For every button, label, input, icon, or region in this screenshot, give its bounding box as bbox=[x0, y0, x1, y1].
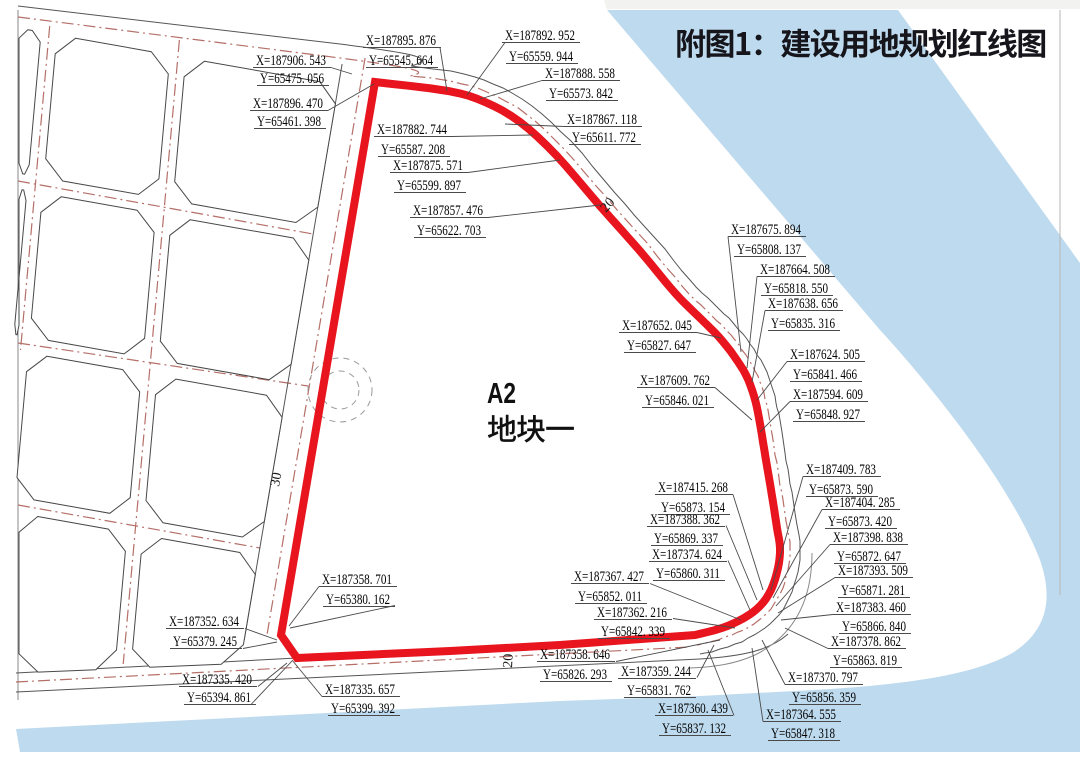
svg-text:Y=65808. 137: Y=65808. 137 bbox=[737, 242, 801, 258]
svg-text:X=187675. 894: X=187675. 894 bbox=[731, 222, 801, 238]
svg-text:Y=65461. 398: Y=65461. 398 bbox=[257, 114, 321, 130]
svg-text:Y=65842. 339: Y=65842. 339 bbox=[601, 624, 665, 640]
svg-text:Y=65475. 056: Y=65475. 056 bbox=[260, 71, 324, 87]
svg-text:Y=65866. 840: Y=65866. 840 bbox=[842, 619, 906, 635]
svg-text:X=187624. 505: X=187624. 505 bbox=[790, 347, 860, 363]
svg-text:X=187867. 118: X=187867. 118 bbox=[567, 112, 637, 128]
svg-text:X=187335. 420: X=187335. 420 bbox=[182, 672, 252, 688]
svg-text:X=187378. 862: X=187378. 862 bbox=[831, 634, 901, 650]
svg-text:Y=65860. 311: Y=65860. 311 bbox=[656, 566, 720, 582]
svg-text:Y=65380. 162: Y=65380. 162 bbox=[326, 592, 390, 608]
svg-text:Y=65399. 392: Y=65399. 392 bbox=[331, 701, 395, 717]
svg-text:Y=65573. 842: Y=65573. 842 bbox=[549, 86, 613, 102]
svg-text:Y=65835. 316: Y=65835. 316 bbox=[771, 316, 835, 332]
svg-text:Y=65379. 245: Y=65379. 245 bbox=[173, 634, 237, 650]
svg-text:X=187358. 646: X=187358. 646 bbox=[540, 647, 610, 663]
svg-text:X=187409. 783: X=187409. 783 bbox=[806, 462, 876, 478]
svg-text:X=187888. 558: X=187888. 558 bbox=[545, 66, 615, 82]
svg-text:Y=65847. 318: Y=65847. 318 bbox=[771, 726, 835, 742]
svg-text:Y=65826. 293: Y=65826. 293 bbox=[543, 667, 607, 683]
svg-text:Y=65837. 132: Y=65837. 132 bbox=[662, 721, 726, 737]
svg-text:Y=65827. 647: Y=65827. 647 bbox=[627, 338, 691, 354]
svg-text:Y=65871. 281: Y=65871. 281 bbox=[841, 583, 905, 599]
svg-text:X=187360. 439: X=187360. 439 bbox=[658, 701, 728, 717]
svg-text:Y=65611. 772: Y=65611. 772 bbox=[572, 130, 636, 146]
svg-text:Y=65622. 703: Y=65622. 703 bbox=[417, 223, 481, 239]
svg-text:Y=65559. 944: Y=65559. 944 bbox=[509, 49, 573, 65]
svg-text:X=187393. 509: X=187393. 509 bbox=[838, 563, 908, 579]
svg-text:X=187352. 634: X=187352. 634 bbox=[169, 614, 239, 630]
svg-text:X=187335. 657: X=187335. 657 bbox=[325, 682, 395, 698]
svg-text:Y=65852. 011: Y=65852. 011 bbox=[578, 589, 642, 605]
svg-text:X=187404. 285: X=187404. 285 bbox=[825, 495, 895, 511]
svg-text:X=187364. 555: X=187364. 555 bbox=[766, 707, 836, 723]
svg-text:X=187374. 624: X=187374. 624 bbox=[652, 547, 722, 563]
svg-text:X=187882. 744: X=187882. 744 bbox=[377, 122, 447, 138]
svg-text:X=187664. 508: X=187664. 508 bbox=[760, 262, 830, 278]
svg-text:X=187367. 427: X=187367. 427 bbox=[574, 569, 644, 585]
svg-text:Y=65587. 208: Y=65587. 208 bbox=[381, 142, 445, 158]
svg-text:X=187383. 460: X=187383. 460 bbox=[836, 600, 906, 616]
svg-text:Y=65873. 420: Y=65873. 420 bbox=[828, 514, 892, 530]
svg-text:X=187857. 476: X=187857. 476 bbox=[413, 203, 483, 219]
svg-text:Y=65841. 466: Y=65841. 466 bbox=[793, 367, 857, 383]
svg-text:Y=65394. 861: Y=65394. 861 bbox=[187, 690, 251, 706]
svg-text:X=187875. 571: X=187875. 571 bbox=[393, 158, 463, 174]
svg-text:X=187594. 609: X=187594. 609 bbox=[793, 387, 863, 403]
svg-text:X=187358. 701: X=187358. 701 bbox=[322, 572, 392, 588]
svg-text:X=187370. 797: X=187370. 797 bbox=[788, 670, 858, 686]
svg-text:X=187359. 244: X=187359. 244 bbox=[621, 664, 691, 680]
svg-text:X=187892. 952: X=187892. 952 bbox=[505, 28, 575, 44]
svg-text:Y=65856. 359: Y=65856. 359 bbox=[792, 690, 856, 706]
svg-text:X=187388. 362: X=187388. 362 bbox=[650, 512, 720, 528]
svg-text:X=187638. 656: X=187638. 656 bbox=[768, 296, 838, 312]
svg-text:X=187398. 838: X=187398. 838 bbox=[833, 530, 903, 546]
svg-text:Y=65545. 664: Y=65545. 664 bbox=[369, 53, 433, 69]
svg-text:30: 30 bbox=[268, 471, 285, 487]
svg-text:Y=65848. 927: Y=65848. 927 bbox=[796, 407, 860, 423]
svg-text:Y=65863. 819: Y=65863. 819 bbox=[833, 653, 897, 669]
svg-text:Y=65846. 021: Y=65846. 021 bbox=[645, 393, 709, 409]
svg-text:Y=65599. 897: Y=65599. 897 bbox=[397, 178, 461, 194]
svg-text:A2: A2 bbox=[487, 378, 516, 410]
svg-text:X=187895. 876: X=187895. 876 bbox=[366, 33, 436, 49]
svg-text:X=187362. 216: X=187362. 216 bbox=[597, 605, 667, 621]
svg-text:Y=65869. 337: Y=65869. 337 bbox=[654, 531, 718, 547]
svg-text:X=187896. 470: X=187896. 470 bbox=[253, 96, 323, 112]
svg-text:20: 20 bbox=[501, 653, 517, 668]
svg-text:Y=65818. 550: Y=65818. 550 bbox=[764, 281, 828, 297]
svg-text:X=187906. 543: X=187906. 543 bbox=[256, 53, 326, 69]
svg-text:X=187652. 045: X=187652. 045 bbox=[622, 318, 692, 334]
svg-text:X=187609. 762: X=187609. 762 bbox=[640, 373, 710, 389]
svg-text:X=187415. 268: X=187415. 268 bbox=[658, 480, 728, 496]
svg-text:Y=65831. 762: Y=65831. 762 bbox=[627, 683, 691, 699]
